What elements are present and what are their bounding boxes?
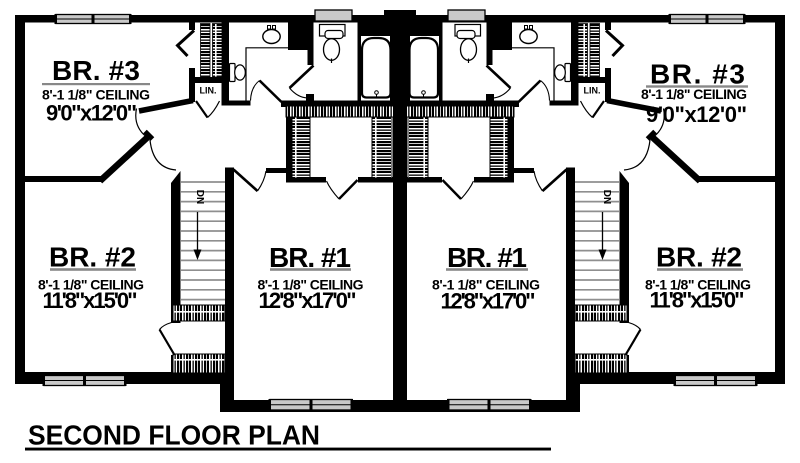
svg-text:LIN.: LIN. <box>584 86 601 96</box>
svg-text:BR. #3: BR. #3 <box>650 59 745 90</box>
svg-text:12'8"x17'0": 12'8"x17'0" <box>441 289 536 314</box>
svg-text:9'0"x12'0": 9'0"x12'0" <box>646 102 747 127</box>
svg-text:12'8"x17'0": 12'8"x17'0" <box>259 288 357 313</box>
svg-text:BR. #2: BR. #2 <box>49 242 136 273</box>
svg-text:8'-1 1/8" CEILING: 8'-1 1/8" CEILING <box>641 86 747 102</box>
svg-text:DN: DN <box>601 190 612 204</box>
svg-text:LIN.: LIN. <box>200 86 217 96</box>
svg-text:BR. #2: BR. #2 <box>656 242 742 273</box>
svg-text:11'8"x15'0": 11'8"x15'0" <box>43 288 138 313</box>
svg-text:11'8"x15'0": 11'8"x15'0" <box>650 288 745 313</box>
svg-text:9'0"x12'0": 9'0"x12'0" <box>46 101 137 126</box>
svg-text:SECOND FLOOR PLAN: SECOND FLOOR PLAN <box>28 420 320 451</box>
svg-text:DN: DN <box>194 190 205 204</box>
svg-text:BR. #3: BR. #3 <box>52 55 140 86</box>
